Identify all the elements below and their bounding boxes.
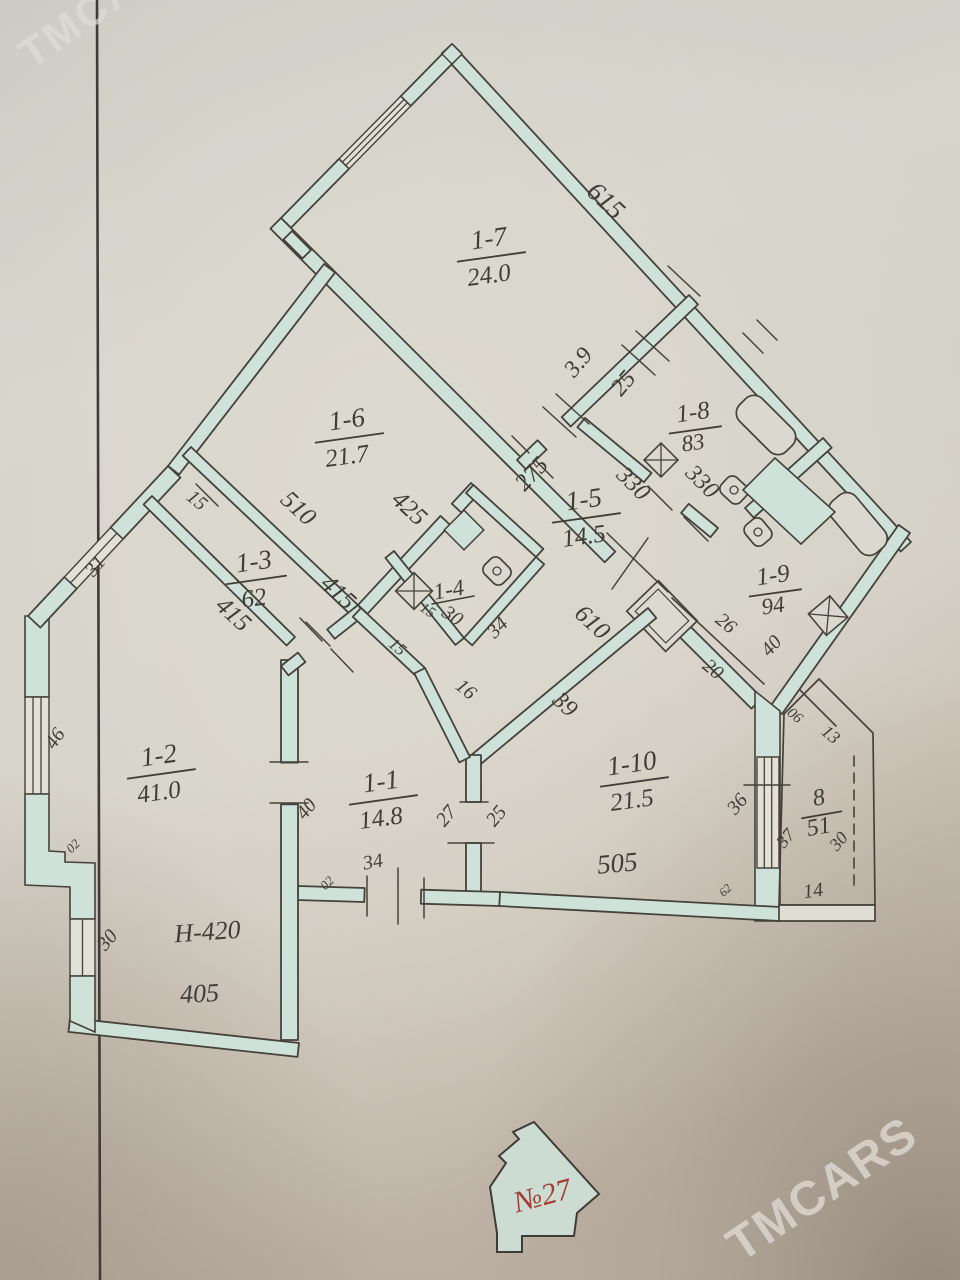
svg-text:1-9: 1-9 [755, 560, 792, 591]
svg-text:1-3: 1-3 [234, 544, 274, 579]
svg-text:1-6: 1-6 [327, 402, 367, 437]
svg-text:H-420: H-420 [172, 915, 241, 949]
svg-text:1-2: 1-2 [139, 738, 179, 773]
svg-text:505: 505 [596, 846, 639, 879]
svg-text:34: 34 [360, 850, 385, 875]
svg-text:1-1: 1-1 [361, 764, 401, 799]
svg-text:94: 94 [760, 592, 786, 620]
svg-text:1-5: 1-5 [564, 482, 604, 517]
svg-text:1-7: 1-7 [469, 221, 510, 256]
svg-text:14: 14 [802, 879, 825, 904]
svg-text:83: 83 [680, 429, 706, 457]
svg-text:405: 405 [179, 978, 219, 1009]
svg-text:1-8: 1-8 [675, 397, 712, 428]
